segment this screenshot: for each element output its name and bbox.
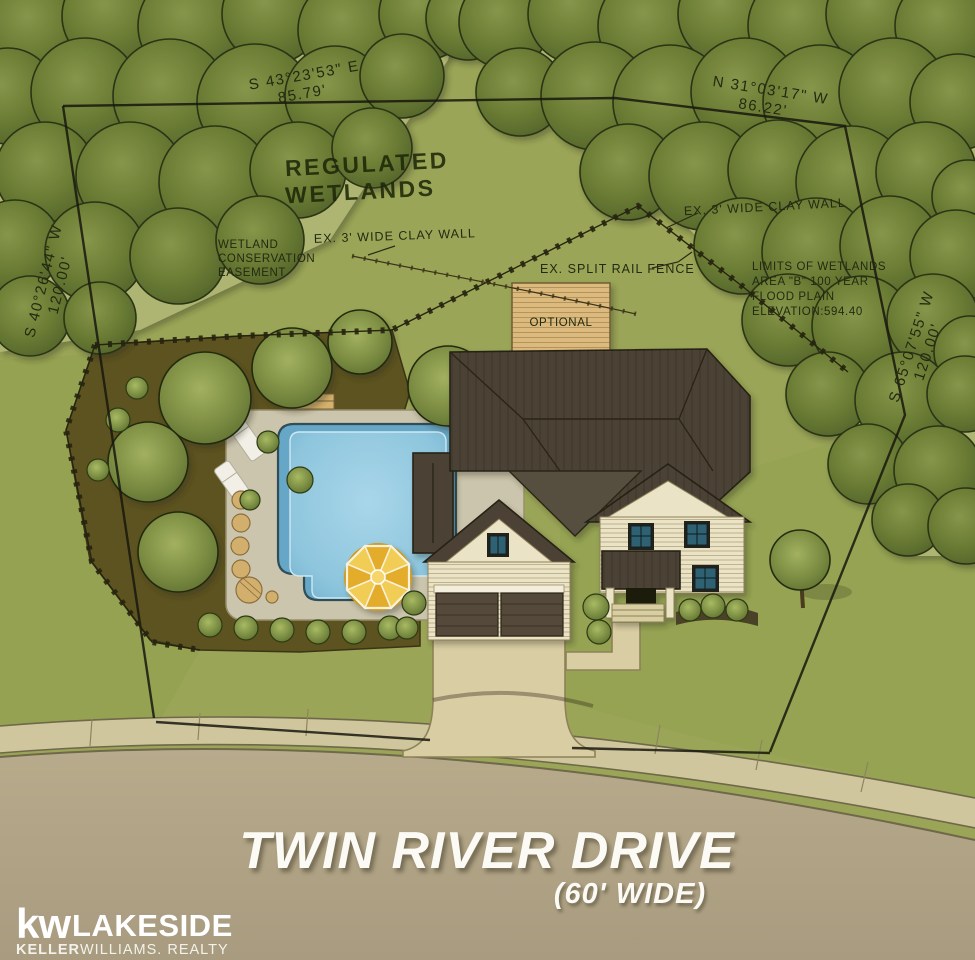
site-plan: OPTIONAL [0,0,975,960]
logo-kw-mark: kw [16,900,71,947]
garage-gable-window [487,533,509,557]
upper-window [684,521,710,548]
svg-text:ELEVATION:594.40: ELEVATION:594.40 [752,306,863,318]
svg-text:AREA "B" 100 YEAR: AREA "B" 100 YEAR [752,276,869,288]
upper-window [628,523,654,550]
porch-post [666,588,674,618]
svg-text:LIMITS OF WETLANDS: LIMITS OF WETLANDS [752,261,886,273]
logo-brand-text: LAKESIDE [72,908,233,943]
svg-text:WETLAND: WETLAND [218,239,278,251]
front-door [626,588,656,605]
logo-subtitle: KELLERWILLIAMS. REALTY [16,942,229,958]
svg-text:CONSERVATION: CONSERVATION [218,253,315,265]
lower-window [692,565,719,592]
street-width-text: (60' WIDE) [554,878,706,910]
label-optional-deck: OPTIONAL [530,317,593,329]
label-split-rail-fence: EX. SPLIT RAIL FENCE [540,262,695,276]
front-stoop [612,604,664,622]
svg-text:EASEMENT: EASEMENT [218,267,286,279]
street-name-text: TWIN RIVER DRIVE [239,822,735,880]
garage-header [434,585,564,593]
kw-lakeside-logo: kw LAKESIDE KELLERWILLIAMS. REALTY [16,900,233,958]
svg-text:FLOOD PLAIN: FLOOD PLAIN [752,291,835,303]
optional-deck: OPTIONAL [512,283,610,353]
